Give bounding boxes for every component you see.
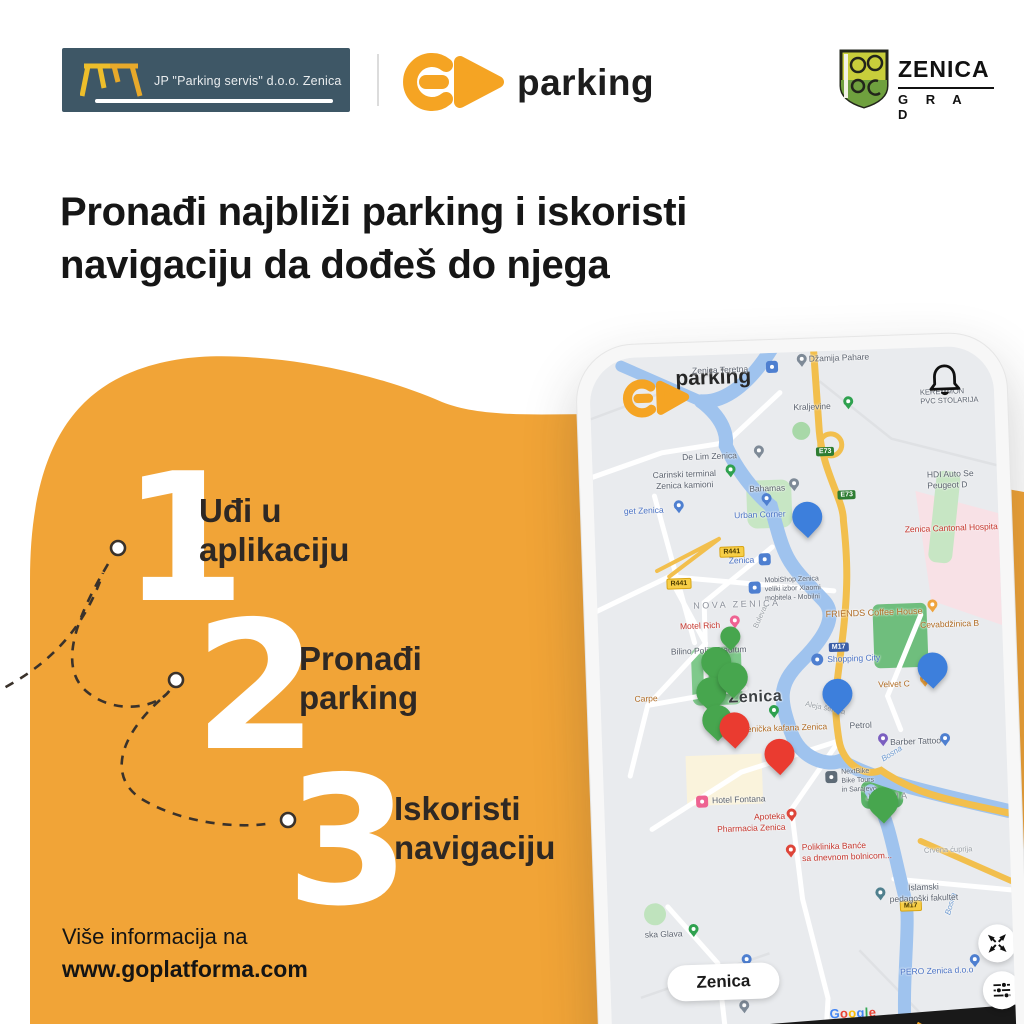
location-pill[interactable]: Zenica bbox=[667, 962, 780, 1002]
footer-url[interactable]: www.goplatforma.com bbox=[62, 956, 308, 983]
road-badge: R441 bbox=[666, 578, 691, 590]
poster: JP "Parking servis" d.o.o. Zenica parkin… bbox=[0, 0, 1024, 1024]
notifications-bell-icon[interactable] bbox=[926, 360, 963, 404]
app-screen: Zenica Teretna Džamija Pahare KEREMMON P… bbox=[589, 345, 1020, 1024]
shop-icon bbox=[748, 581, 760, 593]
road-badge: E73 bbox=[816, 447, 835, 457]
footer-more-info: Više informacija na bbox=[62, 924, 308, 950]
poi-label: Shopping City bbox=[827, 652, 880, 664]
poi-label: Velvet C bbox=[878, 678, 910, 690]
poi-label: Islamski pedagoški fakultet bbox=[889, 881, 958, 905]
phone-mockup: Zenica Teretna Džamija Pahare KEREMMON P… bbox=[574, 331, 1024, 1024]
map-canvas[interactable] bbox=[589, 345, 1020, 1024]
app-go-logo-icon bbox=[615, 375, 703, 425]
poi-label: Urban Corner bbox=[734, 509, 786, 521]
poi-label: Cevabdžinica B bbox=[920, 618, 979, 631]
poi-label: Apoteka Pharmacia Zenica bbox=[717, 811, 786, 835]
poi-label: get Zenica bbox=[624, 505, 664, 517]
hotel-icon bbox=[696, 795, 708, 807]
poi-label: Carpe bbox=[634, 693, 658, 704]
road-badge: R441 bbox=[719, 546, 744, 558]
poi-label: Petrol bbox=[849, 720, 872, 731]
transit-station-icon bbox=[766, 361, 778, 373]
poi-label: Hotel Fontana bbox=[712, 793, 766, 805]
poi-label: De Lim Zenica bbox=[682, 450, 737, 463]
poi-label: Carinski terminal Zenica kamioni bbox=[653, 468, 717, 491]
poi-label: Motel Rich bbox=[680, 620, 721, 632]
footer: Više informacija na www.goplatforma.com bbox=[62, 924, 308, 983]
poi-label: HDI Auto Se Peugeot D bbox=[927, 468, 974, 491]
street-label: Crvena ćuprija bbox=[924, 844, 973, 855]
poi-label: Džamija Pahare bbox=[809, 351, 870, 364]
step-1-label: Uđi u aplikaciju bbox=[199, 492, 349, 570]
step-3-label: Iskoristi navigaciju bbox=[394, 790, 555, 868]
filters-button[interactable] bbox=[982, 971, 1019, 1010]
poi-label: Kraljevine bbox=[793, 401, 831, 413]
step-3-number: 3 bbox=[286, 753, 410, 931]
poi-label: ska Glava bbox=[645, 928, 683, 940]
step-2-label: Pronađi parking bbox=[299, 640, 422, 718]
rail-station-icon bbox=[758, 553, 770, 565]
bike-icon bbox=[825, 771, 837, 783]
poi-label: Poliklinika Banće sa dnevnom bolnicom... bbox=[802, 839, 892, 863]
road-badge: E73 bbox=[837, 490, 856, 500]
road-badge: M17 bbox=[829, 642, 849, 652]
